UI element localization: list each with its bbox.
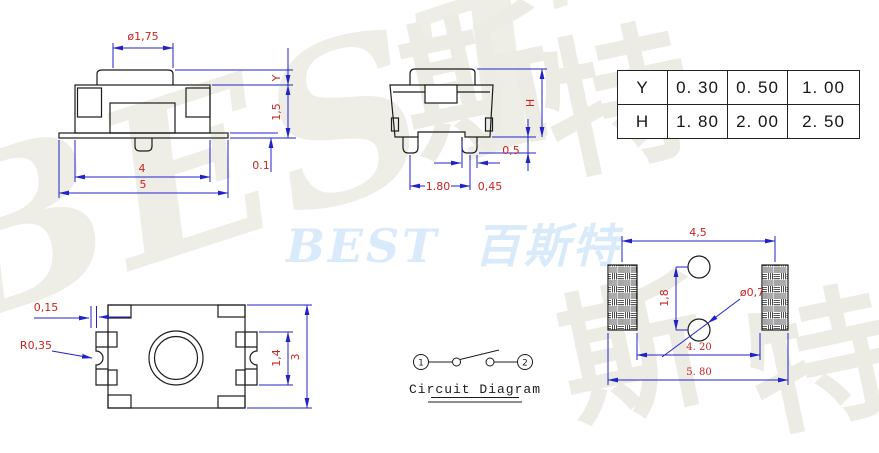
table-cell: 0. 50 [728, 71, 788, 105]
table-cell: 1. 80 [668, 105, 728, 139]
pad-right [762, 265, 788, 330]
table-cell: 2. 50 [788, 105, 860, 139]
spec-table: Y 0. 30 0. 50 1. 00 H 1. 80 2. 00 2. 50 [617, 70, 860, 139]
table-row-h: H 1. 80 2. 00 2. 50 [618, 105, 860, 139]
dim-outer-width: 5 [140, 178, 147, 191]
table-cell: 1. 00 [788, 71, 860, 105]
dim-cap-diameter: ø1,75 [127, 30, 158, 43]
pcb-land-pattern: 4,5 1,8 ø0,7 4. 20 5. 80 [608, 226, 788, 385]
hole-top [688, 256, 710, 278]
dim-leg-pitch: 1.80 [426, 180, 451, 193]
dim-standoff: 0,5 [502, 144, 520, 157]
circuit-caption: Circuit Diagram [409, 382, 541, 397]
table-row-label: Y [618, 71, 668, 105]
dim-leg-width: 0,45 [478, 180, 503, 193]
terminal-2-label: 2 [522, 359, 528, 369]
terminal-1-label: 1 [418, 359, 424, 369]
dim-pad-outer-span: 5. 80 [686, 367, 711, 378]
table-row-y: Y 0. 30 0. 50 1. 00 [618, 71, 860, 105]
table-cell: 2. 00 [728, 105, 788, 139]
top-view: 0,15 R0,35 1,4 3 [20, 301, 312, 408]
dim-hole-pitch: 1,8 [658, 289, 671, 307]
dim-notch-radius: R0,35 [20, 339, 52, 352]
front-view: ø1,75 Y 1,5 0.1 4 5 [59, 30, 296, 198]
pad-left [608, 265, 637, 330]
front-view-outline [59, 70, 228, 151]
dim-pad-pitch: 4,5 [689, 226, 707, 239]
dim-travel-y: Y [270, 74, 283, 82]
table-cell: 0. 30 [668, 71, 728, 105]
top-view-dimensions: 0,15 R0,35 1,4 3 [20, 301, 312, 408]
dim-flange-thickness: 0.1 [252, 159, 270, 172]
dim-pad-inner-span: 4. 20 [686, 342, 711, 353]
circuit-diagram: 1 2 Circuit Diagram [409, 350, 541, 402]
dim-inner-width: 4 [139, 162, 146, 175]
table-row-label: H [618, 105, 668, 139]
actuator-outer-circle [149, 331, 203, 385]
dim-terminal-height: 1,4 [270, 349, 283, 367]
actuator-inner-circle [155, 337, 198, 380]
dim-total-height-h: H [524, 99, 537, 107]
front-view-dimensions: ø1,75 Y 1,5 0.1 4 5 [59, 30, 296, 198]
dim-edge-gap: 0,15 [34, 301, 59, 314]
side-view-outline [390, 69, 493, 153]
dim-body-depth: 3 [289, 354, 302, 361]
side-view: H 0,5 1.80 0,45 [390, 69, 547, 193]
drawing-views: ø1,75 Y 1,5 0.1 4 5 [0, 0, 879, 453]
top-view-outline [96, 305, 257, 408]
drawing-sheet: BEST 斯 特 斯 特 BEST 百斯特 [0, 0, 879, 453]
dim-hole-diameter: ø0,7 [740, 286, 764, 299]
dim-body-height: 1,5 [270, 103, 283, 121]
